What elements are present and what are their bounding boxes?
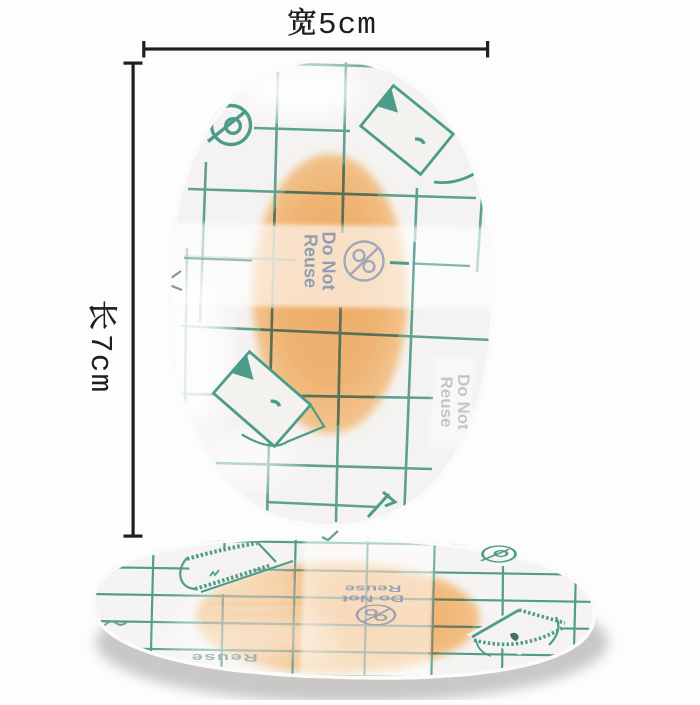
svg-text:Reuse: Reuse: [437, 376, 456, 427]
svg-text:Reuse: Reuse: [301, 234, 321, 288]
svg-text:Do Not: Do Not: [342, 593, 404, 603]
svg-text:5cm: 5cm: [318, 8, 377, 43]
svg-text:Reuse: Reuse: [345, 583, 402, 593]
svg-text:Reuse: Reuse: [190, 651, 257, 663]
svg-text:7cm: 7cm: [82, 334, 117, 393]
svg-text:Do Not: Do Not: [319, 232, 339, 291]
